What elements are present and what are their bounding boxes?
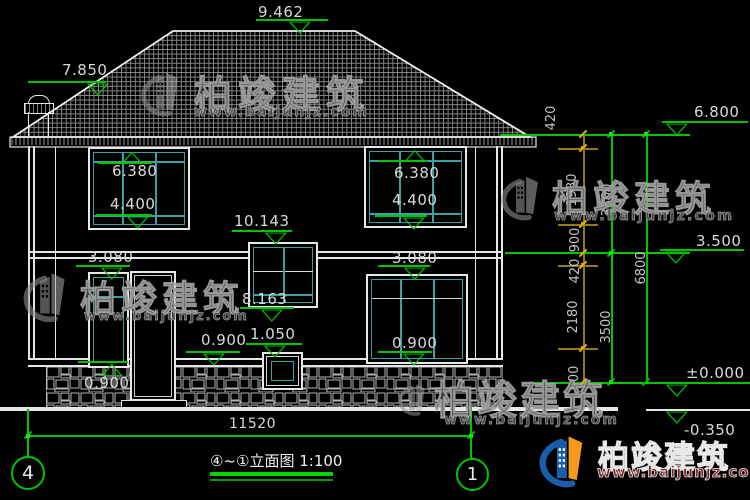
entry-door xyxy=(130,271,176,401)
dim-6800: 6800 xyxy=(635,246,649,290)
level-win2f-left-sill: 4.400 xyxy=(110,197,155,212)
dim-420-top: 420 xyxy=(545,96,559,140)
dim-3300: 3300 xyxy=(601,178,615,222)
drawing-title: ④~①立面图 1:100 xyxy=(210,450,342,471)
grid-bubble-1-label: 1 xyxy=(467,464,478,485)
level-floor2: 3.500 xyxy=(696,234,741,249)
level-win2f-right-sill: 4.400 xyxy=(392,193,437,208)
grid-bubble-4-label: 4 xyxy=(22,462,34,484)
level-chimney: 7.850 xyxy=(62,63,107,78)
level-win2f-left-head: 6.380 xyxy=(112,164,157,179)
level-eave: 6.800 xyxy=(694,105,739,120)
elevation-drawing-canvas: 9.462 7.850 6.380 4.400 6.380 4.400 10.1… xyxy=(0,0,750,500)
dim-1980: 1980 xyxy=(566,168,580,212)
dim-900-b: 900 xyxy=(568,356,582,400)
level-win1f-mid-sill: 0.900 xyxy=(201,333,246,348)
level-stair-win-head: 10.143 xyxy=(234,214,290,229)
watermark-logo-color xyxy=(536,430,594,490)
level-small-win-head: 1.050 xyxy=(250,327,295,342)
door-threshold xyxy=(121,400,187,408)
grid-bubble-1: 1 xyxy=(456,458,489,491)
site-level-line xyxy=(646,409,750,411)
level-ground-zero: ±0.000 xyxy=(686,366,745,381)
ext-line-eave xyxy=(500,134,690,136)
chimney-cap-band xyxy=(24,103,54,114)
level-site: -0.350 xyxy=(684,423,735,438)
ext-line-floor2 xyxy=(505,252,690,254)
title-underline-thin xyxy=(210,479,333,481)
ext-line-ground xyxy=(530,382,750,384)
watermark-url-color: www.baijunjz.com xyxy=(597,463,750,481)
title-underline-thick xyxy=(210,472,333,476)
dim-overall-width: 11520 xyxy=(229,417,276,432)
dim-line-overall xyxy=(28,435,472,437)
watermark-logo-right xyxy=(498,168,548,226)
grid-bubble-4: 4 xyxy=(11,456,45,490)
dim-2180: 2180 xyxy=(567,295,581,339)
level-win1f-left-sill: 0.900 xyxy=(84,376,129,391)
dim-3500: 3500 xyxy=(600,305,614,349)
window-1f-left xyxy=(88,272,129,368)
ground-line xyxy=(0,407,618,411)
level-win2f-right-head: 6.380 xyxy=(394,166,439,181)
